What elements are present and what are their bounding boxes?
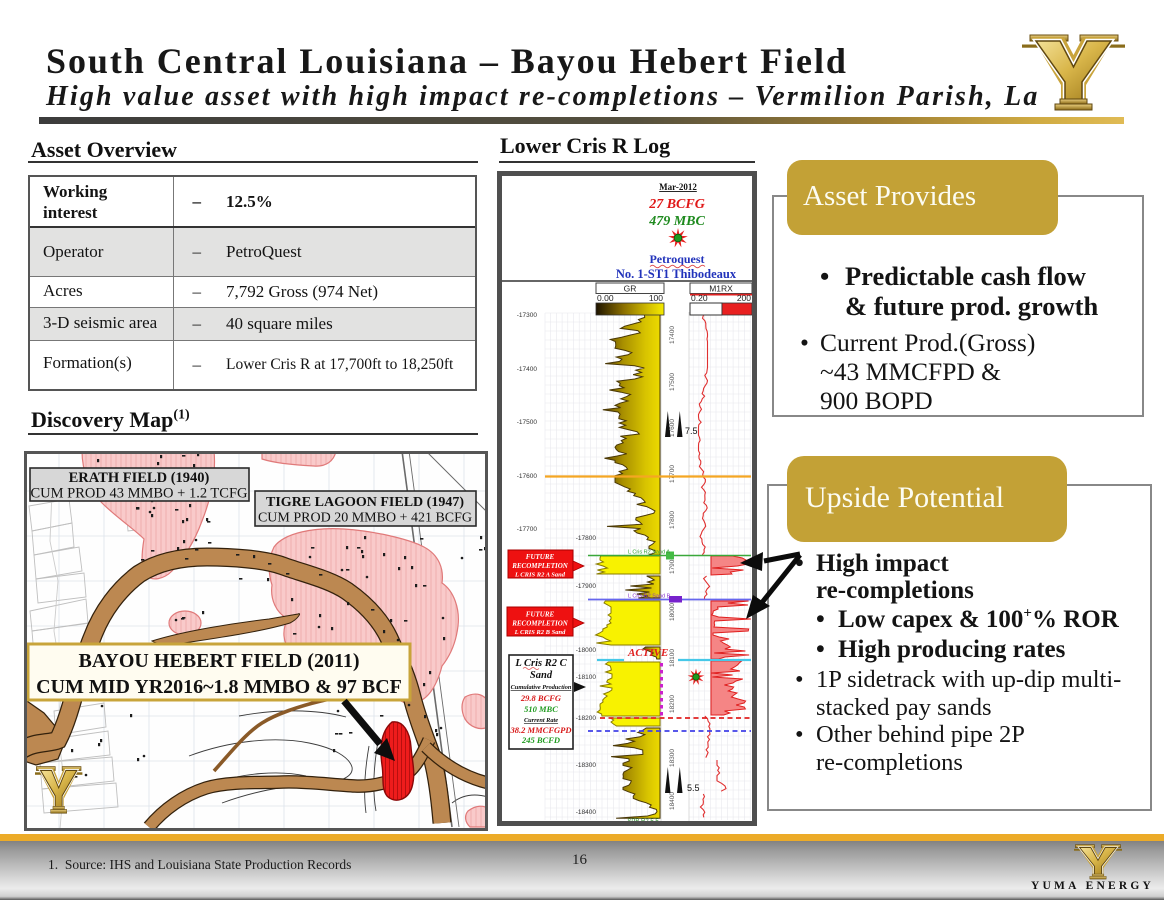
svg-text:17700: 17700 [669, 465, 676, 483]
svg-text:ACTIVE: ACTIVE [627, 647, 668, 659]
svg-text:-18400: -18400 [576, 809, 597, 816]
svg-text:TIGRE LAGOON FIELD (1947): TIGRE LAGOON FIELD (1947) [266, 495, 464, 510]
svg-text:479 MBC: 479 MBC [648, 214, 705, 229]
svg-text:CUM PROD 20 MMBO + 421 BCFG: CUM PROD 20 MMBO + 421 BCFG [258, 511, 472, 526]
svg-text:-17600: -17600 [517, 473, 538, 480]
svg-text:17500: 17500 [669, 373, 676, 391]
svg-text:29.8 BCFG: 29.8 BCFG [520, 693, 562, 703]
svg-text:No. 1-ST1 Thibodeaux: No. 1-ST1 Thibodeaux [616, 267, 737, 281]
svg-text:18000: 18000 [669, 603, 676, 621]
svg-text:17400: 17400 [669, 326, 676, 344]
svg-text:Petroquest: Petroquest [649, 252, 704, 266]
svg-text:18400: 18400 [669, 792, 676, 810]
svg-text:0.20: 0.20 [691, 293, 708, 303]
svg-text:FUTURE: FUTURE [526, 611, 555, 619]
svg-text:-17800: -17800 [576, 535, 597, 542]
svg-text:FUTURE: FUTURE [526, 553, 555, 561]
svg-text:BAYOU HEBERT FIELD (2011): BAYOU HEBERT FIELD (2011) [78, 650, 359, 672]
svg-text:100: 100 [649, 293, 663, 303]
svg-text:-17400: -17400 [517, 366, 538, 373]
svg-text:M1RX: M1RX [709, 284, 733, 294]
svg-text:Current Rate: Current Rate [524, 717, 558, 724]
svg-text:7.5: 7.5 [685, 426, 698, 436]
svg-text:CUM PROD 43 MMBO + 1.2 TCFG: CUM PROD 43 MMBO + 1.2 TCFG [31, 486, 249, 502]
svg-text:-17300: -17300 [517, 312, 538, 319]
svg-text:-18200: -18200 [576, 715, 597, 722]
svg-text:510 MBC: 510 MBC [524, 704, 558, 714]
svg-text:18200: 18200 [669, 695, 676, 713]
svg-text:17800: 17800 [669, 511, 676, 529]
svg-text:-17700: -17700 [517, 526, 538, 533]
svg-text:18100: 18100 [669, 649, 676, 667]
svg-text:27 BCFG: 27 BCFG [648, 197, 705, 212]
svg-text:Sand: Sand [530, 670, 553, 681]
svg-text:L Cris R2 Sand B: L Cris R2 Sand B [628, 594, 671, 600]
svg-text:GR: GR [624, 284, 637, 294]
svg-text:Mar-2012: Mar-2012 [659, 182, 697, 192]
svg-text:L Cris R2 Sand A: L Cris R2 Sand A [628, 550, 670, 556]
svg-text:18300: 18300 [669, 749, 676, 767]
svg-text:CUM MID YR2016~1.8 MMBO & 97 B: CUM MID YR2016~1.8 MMBO & 97 BCF [36, 676, 402, 698]
svg-text:200: 200 [737, 293, 751, 303]
svg-text:L Cris R2 C: L Cris R2 C [514, 658, 567, 669]
svg-text:L CRIS R2 A Sand: L CRIS R2 A Sand [514, 572, 566, 579]
svg-text:RECOMPLETION: RECOMPLETION [511, 620, 569, 628]
svg-text:L CRIS R2 B Sand: L CRIS R2 B Sand [514, 629, 566, 636]
svg-text:-18000: -18000 [576, 647, 597, 654]
svg-text:38.2 MMCFGPD: 38.2 MMCFGPD [510, 725, 572, 735]
svg-text:-17900: -17900 [576, 583, 597, 590]
svg-text:-18300: -18300 [576, 762, 597, 769]
svg-text:245 BCFD: 245 BCFD [521, 735, 560, 745]
svg-text:Cumulative Production: Cumulative Production [511, 684, 572, 691]
svg-text:-17500: -17500 [517, 419, 538, 426]
svg-text:0.00: 0.00 [597, 293, 614, 303]
svg-text:5.5: 5.5 [687, 783, 700, 793]
svg-text:-18100: -18100 [576, 674, 597, 681]
svg-text:RECOMPLETION: RECOMPLETION [511, 562, 569, 570]
svg-text:ERATH FIELD (1940): ERATH FIELD (1940) [69, 470, 210, 486]
